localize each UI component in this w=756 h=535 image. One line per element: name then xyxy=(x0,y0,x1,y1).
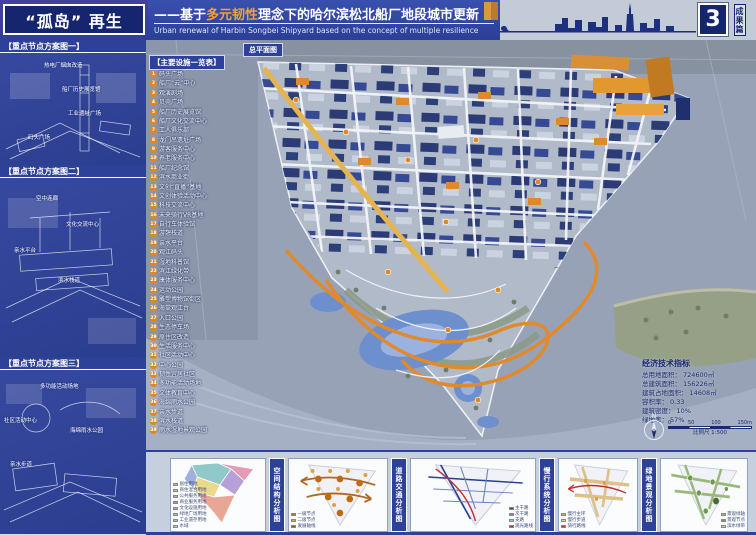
legend-number-badge: 1 xyxy=(150,71,157,78)
legend-label: 原住区改造 xyxy=(159,334,189,341)
legend-text: 主干路 xyxy=(515,506,529,511)
legend-number-badge: 19 xyxy=(150,240,157,247)
card-legend-row: 文化设施用地 xyxy=(173,506,207,511)
legend-text: 工业遗存用地 xyxy=(180,518,207,523)
legend-label: 海棠观江台 xyxy=(159,305,189,312)
legend-item: 4 贝壳广场 xyxy=(150,99,207,106)
north-label: N xyxy=(652,413,657,420)
legend-label: 生活服务中心 xyxy=(159,343,195,350)
legend-label: 船厂文化交流中心 xyxy=(159,118,207,125)
legend-text: 一级节点 xyxy=(298,512,316,517)
legend-number-badge: 30 xyxy=(150,343,157,350)
legend-swatch xyxy=(291,519,296,523)
legend-number-badge: 28 xyxy=(150,324,157,331)
analysis-row: 居住用地商住混合用地公共服务用地商业服务用地文化设施用地绿地广场用地工业遗存用地… xyxy=(146,450,756,535)
legend-text: 慢行主环 xyxy=(568,512,586,517)
legend-item: 9 游客服务中心 xyxy=(150,146,207,153)
legend-item: 7 工人俱乐部 xyxy=(150,127,207,134)
master-plan-map: 总平面图 【主要设施一览表】 1 码头广场 2 船厂“云”中心 3 观演剧场 xyxy=(146,40,756,450)
legend-number-badge: 16 xyxy=(150,212,157,219)
node-scheme-panel-2: 空中连廊文化交流中心亲水平台滨水栈道 xyxy=(0,178,146,357)
legend-item: 28 生态停车场 xyxy=(150,324,207,331)
legend-number-badge: 24 xyxy=(150,287,157,294)
legend-swatch xyxy=(173,489,178,493)
legend-item: 20 观江码头 xyxy=(150,249,207,256)
legend-swatch xyxy=(721,525,726,529)
indicator-label: 总建筑面积： xyxy=(642,380,681,389)
subtitle-cn: ——基于多元韧性理念下的哈尔滨松北船厂地段城市更新 xyxy=(154,3,494,24)
legend-item: 29 原住区改造 xyxy=(150,334,207,341)
card-legend: 居住用地商住混合用地公共服务用地商业服务用地文化设施用地绿地广场用地工业遗存用地… xyxy=(173,482,207,529)
legend-item: 32 中心公园 xyxy=(150,362,207,369)
strip-slow-traffic: 慢行系统分析图 xyxy=(539,458,555,532)
annotation: 热电厂烟囱改造 xyxy=(44,63,83,69)
legend-item: 34 多功能活动场地 xyxy=(150,380,207,387)
node-scheme-panel-1: 热电厂烟囱改造船厂历史展览馆工业遗址广场码头广场 xyxy=(0,53,146,165)
annotation: 文化交流中心 xyxy=(66,222,99,228)
legend-text: 慢行步道 xyxy=(568,518,586,523)
legend-text: 商业服务用地 xyxy=(180,500,207,505)
legend-number-badge: 21 xyxy=(150,259,157,266)
subtitle-prefix: ——基于 xyxy=(154,4,206,23)
legend-text: 观光路线 xyxy=(515,524,533,529)
legend-item: 31 社区活动中心 xyxy=(150,352,207,359)
legend-item: 33 韧性宜居社区 xyxy=(150,371,207,378)
indicators-title: 经济技术指标 xyxy=(642,358,752,369)
legend-item: 27 入口公园 xyxy=(150,315,207,322)
legend-label: 科技交流中心 xyxy=(159,202,195,209)
card-legend: 主干路次干路支路观光路线 xyxy=(509,506,534,529)
scale-caption: 比例尺 1:500 xyxy=(668,429,752,437)
legend-number-badge: 4 xyxy=(150,99,157,106)
legend-swatch xyxy=(721,519,726,523)
card-legend-row: 景观绿轴 xyxy=(721,512,746,517)
legend-text: 水域 xyxy=(180,524,189,529)
page-number: 3 xyxy=(698,3,728,36)
legend-number-badge: 25 xyxy=(150,296,157,303)
legend-swatch xyxy=(509,525,514,529)
legend-swatch xyxy=(173,525,178,529)
legend-text: 景观绿轴 xyxy=(727,512,745,517)
header-right-area: 3 成果篇 xyxy=(500,0,756,40)
legend-swatch xyxy=(173,483,178,487)
legend-number-badge: 31 xyxy=(150,352,157,359)
legend-label: 滨水商业街 xyxy=(159,174,189,181)
legend-item: 26 海棠观江台 xyxy=(150,305,207,312)
legend-number-badge: 27 xyxy=(150,315,157,322)
presentation-board: “孤岛” 再生 ——基于多元韧性理念下的哈尔滨松北船厂地段城市更新 Urban … xyxy=(0,0,756,535)
annotation: 空中连廊 xyxy=(36,196,58,202)
legend-item: 8 龙门吊遗址广场 xyxy=(150,137,207,144)
legend-item: 18 游憩栈道 xyxy=(150,230,207,237)
sidebar-panel-3-label: 【重点节点方案图三】 xyxy=(0,357,146,370)
legend-label: 船厂历史展览馆 xyxy=(159,109,201,116)
legend-item: 22 滨江绿化带 xyxy=(150,268,207,275)
card-legend-row: 次干路 xyxy=(509,512,534,517)
legend-number-badge: 29 xyxy=(150,334,157,341)
scale-bar: 050100150m 比例尺 1:500 xyxy=(668,420,752,437)
green-landscape-analysis-card: 景观绿轴景观节点滨水绿带 xyxy=(660,458,748,532)
legend-number-badge: 22 xyxy=(150,268,157,275)
legend-swatch xyxy=(173,501,178,505)
legend-label: 韧性宜居社区 xyxy=(159,371,195,378)
legend-text: 二级节点 xyxy=(298,518,316,523)
legend-label: 码头广场 xyxy=(159,71,183,78)
annotation: 滨水栈道 xyxy=(58,278,80,284)
legend-text: 支路 xyxy=(515,518,524,523)
header-title-area: “孤岛” 再生 xyxy=(0,0,148,40)
indicator-value: 14608㎡ xyxy=(690,389,717,398)
legend-label: 多功能活动场地 xyxy=(159,380,201,387)
legend-label: 游客服务中心 xyxy=(159,146,195,153)
card-legend-row: 支路 xyxy=(509,518,534,523)
legend-text: 商住混合用地 xyxy=(180,488,207,493)
north-arrow: N xyxy=(640,412,668,446)
legend-number-badge: 33 xyxy=(150,371,157,378)
slow-traffic-analysis-card: 慢行主环慢行步道骑行路线 xyxy=(558,458,638,532)
annotation: 码头广场 xyxy=(28,135,50,141)
header: “孤岛” 再生 ——基于多元韧性理念下的哈尔滨松北船厂地段城市更新 Urban … xyxy=(0,0,756,40)
strip-spatial-structure: 空间结构分析图 xyxy=(269,458,285,532)
legend-label: 自行车体验馆 xyxy=(159,221,195,228)
indicator-label: 建筑占地面积： xyxy=(642,389,688,398)
legend-swatch xyxy=(561,519,566,523)
card-legend: 景观绿轴景观节点滨水绿带 xyxy=(721,512,746,529)
annotation: 船厂历史展览馆 xyxy=(62,87,101,93)
annotation: 工业遗址广场 xyxy=(68,111,101,117)
node-scheme-panel-3: 多功能活动场地社区活动中心海绵雨水公园亲水步道 xyxy=(0,370,146,534)
indicator-row: 建筑占地面积： 14608㎡ xyxy=(642,389,752,398)
card-legend-row: 骑行路线 xyxy=(561,524,586,529)
subtitle-en: Urban renewal of Harbin Songbei Shipyard… xyxy=(154,26,494,35)
legend-item: 21 湿地科普馆 xyxy=(150,259,207,266)
card-legend-row: 景观节点 xyxy=(721,518,746,523)
legend-item: 38 滨水栈道 xyxy=(150,418,207,425)
legend-number-badge: 3 xyxy=(150,90,157,97)
indicator-row: 总建筑面积： 156226㎡ xyxy=(642,380,752,389)
indicator-value: 10% xyxy=(677,407,691,416)
legend-label: 中心公园 xyxy=(159,362,183,369)
strip-road-traffic: 道路交通分析图 xyxy=(391,458,407,532)
legend-label: 入口公园 xyxy=(159,315,183,322)
legend-label: 船厂“云”中心 xyxy=(159,80,195,87)
legend-label: 游憩栈道 xyxy=(159,230,183,237)
page-section-tag: 成果篇 xyxy=(734,4,746,36)
legend-number-badge: 7 xyxy=(150,127,157,134)
facilities-legend: 1 码头广场 2 船厂“云”中心 3 观演剧场 4 贝壳广场 xyxy=(150,71,207,434)
legend-label: 雨水湿地景观公园 xyxy=(159,427,207,434)
sidebar-panel-1-label: 【重点节点方案图一】 xyxy=(0,40,146,53)
indicator-value: 724600㎡ xyxy=(683,371,714,380)
legend-swatch xyxy=(291,513,296,517)
indicator-label: 容积率： xyxy=(642,398,668,407)
legend-label: 亲水平台 xyxy=(159,240,183,247)
indicator-value: 156226㎡ xyxy=(683,380,714,389)
legend-item: 15 科技交流中心 xyxy=(150,202,207,209)
legend-text: 文化设施用地 xyxy=(180,506,207,511)
card-legend: 一级节点二级节点发展轴线 xyxy=(291,512,316,529)
legend-label: 雕塑博物馆街区 xyxy=(159,296,201,303)
legend-label: 文创体验活动中心 xyxy=(159,193,207,200)
legend-text: 公共服务用地 xyxy=(180,494,207,499)
indicator-label: 总用地面积： xyxy=(642,371,681,380)
legend-item: 17 自行车体验馆 xyxy=(150,221,207,228)
map-title-tag: 总平面图 xyxy=(243,43,283,57)
legend-item: 16 未来骑行VR基地 xyxy=(150,212,207,219)
legend-text: 滨水绿带 xyxy=(727,524,745,529)
indicator-value: 0.33 xyxy=(670,398,684,407)
legend-label: 文创“直播”基地 xyxy=(159,184,201,191)
legend-item: 1 码头广场 xyxy=(150,71,207,78)
legend-label: 湿地科普馆 xyxy=(159,259,189,266)
legend-number-badge: 9 xyxy=(150,146,157,153)
sidebar: 【重点节点方案图一】 热电厂烟囱改造船厂历史展览馆工业遗址广场码头广场 【 xyxy=(0,40,146,535)
legend-item: 5 船厂历史展览馆 xyxy=(150,109,207,116)
card-legend-row: 观光路线 xyxy=(509,524,534,529)
legend-swatch xyxy=(173,507,178,511)
legend-item: 13 文创“直播”基地 xyxy=(150,184,207,191)
legend-item: 12 滨水商业街 xyxy=(150,174,207,181)
decor-orange-block xyxy=(484,2,498,20)
legend-item: 35 文体教育中心 xyxy=(150,390,207,397)
legend-text: 次干路 xyxy=(515,512,529,517)
legend-item: 19 亲水平台 xyxy=(150,240,207,247)
card-legend-row: 水域 xyxy=(173,524,207,529)
legend-number-badge: 17 xyxy=(150,221,157,228)
card-legend-row: 慢行步道 xyxy=(561,518,586,523)
card-legend-row: 一级节点 xyxy=(291,512,316,517)
legend-number-badge: 26 xyxy=(150,305,157,312)
card-legend-row: 工业遗存用地 xyxy=(173,518,207,523)
legend-text: 景观节点 xyxy=(727,518,745,523)
legend-text: 骑行路线 xyxy=(568,524,586,529)
legend-number-badge: 36 xyxy=(150,399,157,406)
legend-number-badge: 14 xyxy=(150,193,157,200)
subtitle-suffix: 理念下的哈尔滨松北船厂地段城市更新 xyxy=(258,4,479,23)
card-legend-row: 商住混合用地 xyxy=(173,488,207,493)
board-title: “孤岛” 再生 xyxy=(3,4,145,35)
legend-number-badge: 10 xyxy=(150,155,157,162)
legend-number-badge: 18 xyxy=(150,230,157,237)
scale-tick: 0 xyxy=(668,420,671,426)
header-subtitle-area: ——基于多元韧性理念下的哈尔滨松北船厂地段城市更新 Urban renewal … xyxy=(148,0,500,40)
legend-label: 贝壳广场 xyxy=(159,99,183,106)
card-legend-row: 绿地广场用地 xyxy=(173,512,207,517)
panel-1-annotations: 热电厂烟囱改造船厂历史展览馆工业遗址广场码头广场 xyxy=(0,53,146,165)
scale-tick: 50 xyxy=(688,420,694,426)
legend-label: 文体教育中心 xyxy=(159,390,195,397)
legend-label: 亲水步道 xyxy=(159,409,183,416)
legend-item: 36 海绵雨水公园 xyxy=(150,399,207,406)
legend-number-badge: 39 xyxy=(150,427,157,434)
legend-label: 龙门吊遗址广场 xyxy=(159,137,201,144)
legend-item: 14 文创体验活动中心 xyxy=(150,193,207,200)
legend-label: 运动公园 xyxy=(159,287,183,294)
panel-3-annotations: 多功能活动场地社区活动中心海绵雨水公园亲水步道 xyxy=(0,370,146,534)
card-legend-row: 慢行主环 xyxy=(561,512,586,517)
legend-number-badge: 12 xyxy=(150,174,157,181)
legend-label: 观演剧场 xyxy=(159,90,183,97)
legend-swatch xyxy=(561,525,566,529)
annotation: 海绵雨水公园 xyxy=(70,428,103,434)
spatial-structure-analysis-card: 一级节点二级节点发展轴线 xyxy=(288,458,388,532)
legend-swatch xyxy=(291,525,296,529)
legend-label: 滨水栈道 xyxy=(159,418,183,425)
legend-label: 未来骑行VR基地 xyxy=(159,212,203,219)
legend-number-badge: 35 xyxy=(150,390,157,397)
legend-number-badge: 2 xyxy=(150,80,157,87)
legend-item: 11 船厂纪念馆 xyxy=(150,165,207,172)
land-use-analysis-card: 居住用地商住混合用地公共服务用地商业服务用地文化设施用地绿地广场用地工业遗存用地… xyxy=(170,458,266,532)
legend-swatch xyxy=(509,513,514,517)
legend-number-badge: 23 xyxy=(150,277,157,284)
legend-number-badge: 34 xyxy=(150,380,157,387)
legend-item: 6 船厂文化交流中心 xyxy=(150,118,207,125)
legend-number-badge: 8 xyxy=(150,137,157,144)
scale-tick: 150m xyxy=(738,420,752,426)
annotation: 社区活动中心 xyxy=(4,418,37,424)
legend-label: 海绵雨水公园 xyxy=(159,399,195,406)
card-legend-row: 二级节点 xyxy=(291,518,316,523)
legend-swatch xyxy=(173,495,178,499)
legend-label: 观江码头 xyxy=(159,249,183,256)
subtitle-highlight: 多元韧性 xyxy=(206,4,258,23)
legend-number-badge: 13 xyxy=(150,184,157,191)
card-legend-row: 公共服务用地 xyxy=(173,494,207,499)
legend-item: 3 观演剧场 xyxy=(150,90,207,97)
legend-label: 船厂纪念馆 xyxy=(159,165,189,172)
legend-item: 2 船厂“云”中心 xyxy=(150,80,207,87)
legend-item: 23 康体服务中心 xyxy=(150,277,207,284)
legend-swatch xyxy=(509,519,514,523)
card-legend-row: 商业服务用地 xyxy=(173,500,207,505)
annotation: 亲水平台 xyxy=(14,248,36,254)
legend-item: 25 雕塑博物馆街区 xyxy=(150,296,207,303)
facilities-legend-title: 【主要设施一览表】 xyxy=(149,55,225,70)
legend-item: 10 养老服务中心 xyxy=(150,155,207,162)
strip-green-landscape: 绿地景观分析图 xyxy=(641,458,657,532)
indicator-row: 总用地面积： 724600㎡ xyxy=(642,371,752,380)
card-legend-row: 发展轴线 xyxy=(291,524,316,529)
legend-swatch xyxy=(561,513,566,517)
legend-label: 滨江绿化带 xyxy=(159,268,189,275)
card-legend: 慢行主环慢行步道骑行路线 xyxy=(561,512,586,529)
scale-tick: 100 xyxy=(711,420,721,426)
legend-swatch xyxy=(721,513,726,517)
card-legend-row: 主干路 xyxy=(509,506,534,511)
legend-text: 居住用地 xyxy=(180,482,198,487)
panel-2-annotations: 空中连廊文化交流中心亲水平台滨水栈道 xyxy=(0,178,146,357)
legend-number-badge: 20 xyxy=(150,249,157,256)
card-legend-row: 滨水绿带 xyxy=(721,524,746,529)
legend-number-badge: 6 xyxy=(150,118,157,125)
legend-label: 工人俱乐部 xyxy=(159,127,189,134)
analysis-cards: 居住用地商住混合用地公共服务用地商业服务用地文化设施用地绿地广场用地工业遗存用地… xyxy=(170,458,748,532)
legend-number-badge: 15 xyxy=(150,202,157,209)
legend-number-badge: 37 xyxy=(150,409,157,416)
legend-label: 社区活动中心 xyxy=(159,352,195,359)
legend-number-badge: 11 xyxy=(150,165,157,172)
annotation: 亲水步道 xyxy=(10,462,32,468)
legend-item: 24 运动公园 xyxy=(150,287,207,294)
legend-item: 37 亲水步道 xyxy=(150,409,207,416)
legend-label: 养老服务中心 xyxy=(159,155,195,162)
legend-swatch xyxy=(173,513,178,517)
road-traffic-analysis-card: 主干路次干路支路观光路线 xyxy=(410,458,536,532)
legend-label: 康体服务中心 xyxy=(159,277,195,284)
legend-item: 30 生活服务中心 xyxy=(150,343,207,350)
legend-label: 生态停车场 xyxy=(159,324,189,331)
legend-text: 绿地广场用地 xyxy=(180,512,207,517)
annotation: 多功能活动场地 xyxy=(40,384,79,390)
legend-item: 39 雨水湿地景观公园 xyxy=(150,427,207,434)
legend-swatch xyxy=(509,507,514,511)
legend-swatch xyxy=(173,519,178,523)
sidebar-panel-2-label: 【重点节点方案图二】 xyxy=(0,165,146,178)
indicator-row: 容积率： 0.33 xyxy=(642,398,752,407)
legend-text: 发展轴线 xyxy=(298,524,316,529)
legend-number-badge: 5 xyxy=(150,109,157,116)
legend-number-badge: 38 xyxy=(150,418,157,425)
legend-number-badge: 32 xyxy=(150,362,157,369)
card-legend-row: 居住用地 xyxy=(173,482,207,487)
